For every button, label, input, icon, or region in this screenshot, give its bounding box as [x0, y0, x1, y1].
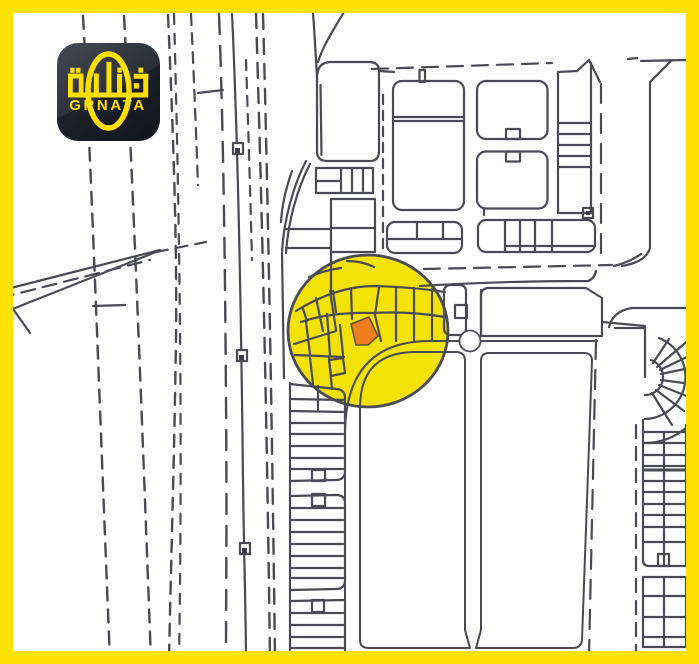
svg-text:GRNATA: GRNATA — [69, 97, 147, 114]
